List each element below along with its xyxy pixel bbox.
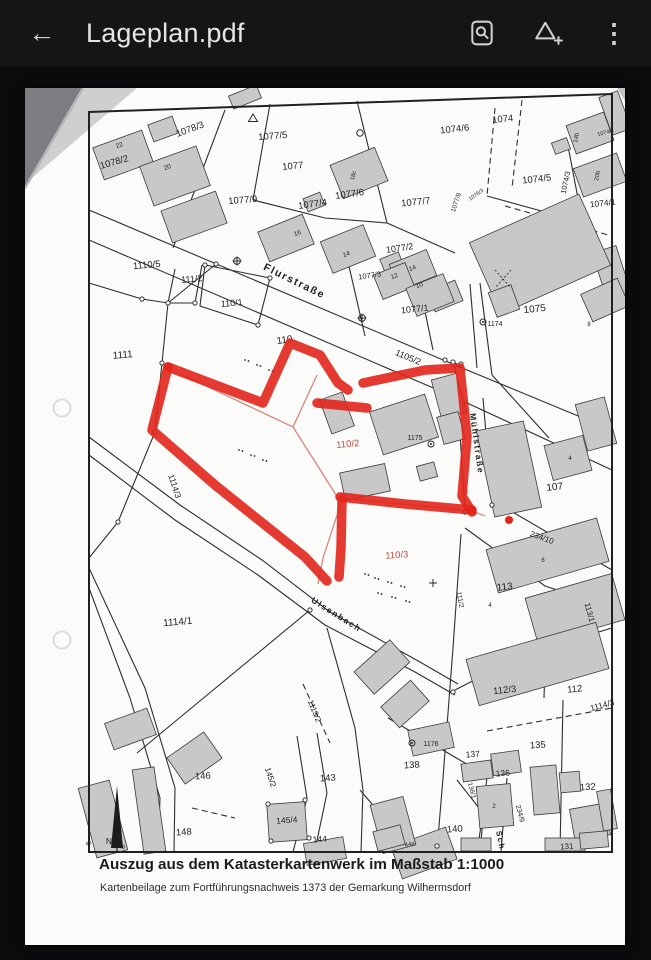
map-label: 1113/2 bbox=[306, 699, 323, 724]
survey-dots bbox=[242, 450, 244, 452]
survey-dots bbox=[238, 449, 240, 451]
map-label: 1077/7 bbox=[401, 196, 431, 210]
map-label: 4 bbox=[488, 603, 492, 609]
map-label: 138 bbox=[404, 759, 421, 771]
map-label: Flurstraße bbox=[261, 261, 327, 301]
survey-point bbox=[451, 360, 455, 364]
survey-dots bbox=[244, 359, 246, 361]
map-label: Sch bbox=[494, 830, 507, 851]
survey-dots bbox=[364, 573, 366, 575]
survey-dots bbox=[260, 365, 262, 367]
map-label: 1077/4 bbox=[297, 197, 327, 212]
buildings-layer bbox=[78, 88, 625, 879]
boundary-line bbox=[327, 628, 363, 790]
map-label: 1075 bbox=[523, 303, 547, 316]
map-label: 1074/5 bbox=[522, 173, 552, 187]
survey-point bbox=[451, 690, 455, 694]
triangle-symbol-icon bbox=[249, 114, 258, 122]
point-symbol-icon bbox=[411, 742, 413, 744]
map-label: 1077/8 bbox=[450, 192, 463, 213]
boundary-line bbox=[137, 610, 310, 753]
boundary-line bbox=[315, 733, 327, 850]
map-label: 136 bbox=[495, 768, 510, 779]
search-in-document-icon bbox=[469, 19, 495, 47]
pdf-page[interactable]: 1078/31077/51078/2222010771077/91077/410… bbox=[25, 88, 625, 945]
map-label: 1077/5 bbox=[258, 130, 288, 143]
building bbox=[354, 640, 410, 694]
survey-point bbox=[140, 297, 144, 301]
survey-dots bbox=[409, 601, 411, 603]
survey-point bbox=[214, 262, 218, 266]
building bbox=[381, 680, 429, 728]
survey-dots bbox=[254, 455, 256, 457]
survey-point bbox=[160, 361, 164, 365]
survey-point bbox=[266, 802, 270, 806]
building bbox=[530, 765, 560, 815]
survey-dots bbox=[256, 364, 258, 366]
survey-point bbox=[490, 503, 494, 507]
building bbox=[579, 831, 608, 849]
add-to-drive-button[interactable] bbox=[531, 16, 565, 50]
boundary-line-dashed bbox=[192, 808, 235, 818]
punch-hole bbox=[54, 400, 71, 417]
survey-point bbox=[308, 608, 312, 612]
map-label: 1074/6 bbox=[440, 123, 470, 137]
red-marker-annotation bbox=[152, 343, 513, 581]
map-label: 1077/6 bbox=[334, 187, 364, 202]
survey-dots bbox=[262, 459, 264, 461]
map-label: 140 bbox=[447, 823, 464, 835]
overflow-menu-button[interactable]: ⋮ bbox=[597, 16, 631, 50]
survey-point bbox=[443, 358, 447, 362]
document-title: Lageplan.pdf bbox=[86, 18, 465, 49]
map-label: 1077 bbox=[282, 160, 304, 173]
punch-hole bbox=[54, 632, 71, 649]
map-label: 146 bbox=[195, 770, 212, 782]
map-label: 110/3 bbox=[385, 549, 409, 562]
survey-point bbox=[203, 263, 207, 267]
survey-dots bbox=[381, 593, 383, 595]
survey-point bbox=[303, 798, 307, 802]
survey-point bbox=[116, 520, 120, 524]
map-label: 143 bbox=[320, 772, 337, 784]
building bbox=[416, 462, 437, 481]
map-label: 111/2 bbox=[181, 273, 203, 285]
map-label: N bbox=[106, 836, 112, 846]
search-in-document-button[interactable] bbox=[465, 16, 499, 50]
survey-dots bbox=[387, 581, 389, 583]
survey-dots bbox=[378, 578, 380, 580]
building bbox=[581, 278, 625, 322]
survey-dots bbox=[395, 597, 397, 599]
survey-dots bbox=[391, 596, 393, 598]
survey-dots bbox=[248, 360, 250, 362]
boundary-line bbox=[200, 265, 270, 325]
survey-dots bbox=[377, 592, 379, 594]
map-label: 136/1 bbox=[466, 782, 477, 800]
red-marker-stroke bbox=[168, 343, 348, 403]
survey-point bbox=[256, 323, 260, 327]
map-label: 131 bbox=[560, 842, 574, 852]
red-marker-stroke bbox=[339, 500, 342, 577]
map-label: 1111 bbox=[112, 349, 133, 362]
map-label: 112 bbox=[567, 683, 583, 696]
boundary-line-dashed bbox=[512, 100, 522, 188]
drive-add-icon bbox=[533, 20, 563, 46]
map-label: 40 bbox=[85, 840, 93, 848]
map-label: 1176 bbox=[423, 741, 438, 748]
building bbox=[461, 760, 493, 782]
red-marker-dot bbox=[505, 516, 513, 524]
map-label: 110/1 bbox=[220, 297, 243, 309]
map-label: 1110/5 bbox=[133, 259, 162, 272]
map-label: 132 bbox=[580, 781, 597, 793]
survey-dots bbox=[374, 577, 376, 579]
map-label: 1114/3 bbox=[166, 473, 183, 500]
building bbox=[132, 767, 166, 854]
survey-point bbox=[269, 839, 273, 843]
map-label: 1077/9 bbox=[228, 194, 258, 207]
red-marker-stroke bbox=[340, 497, 472, 510]
survey-dots bbox=[266, 460, 268, 462]
map-label: 1074/3 bbox=[559, 170, 573, 194]
building bbox=[408, 722, 454, 756]
survey-point bbox=[193, 301, 197, 305]
map-label: 1114/1 bbox=[163, 616, 193, 630]
survey-point bbox=[435, 844, 439, 848]
map-label: 107 bbox=[546, 481, 564, 494]
survey-dots bbox=[368, 574, 370, 576]
building bbox=[551, 138, 570, 155]
app-bar-actions: ⋮ bbox=[465, 16, 631, 50]
point-symbol-icon bbox=[430, 443, 432, 445]
map-label: 1077/2 bbox=[385, 241, 414, 255]
building bbox=[320, 392, 355, 434]
survey-dots bbox=[391, 582, 393, 584]
map-label: 1105/2 bbox=[394, 347, 423, 367]
survey-dots bbox=[404, 586, 406, 588]
map-label: 1078/3 bbox=[175, 120, 206, 140]
red-marker-stroke bbox=[317, 403, 367, 408]
map-label: 145/2 bbox=[263, 766, 278, 788]
map-label: 49 bbox=[119, 845, 125, 851]
map-label: 144 bbox=[312, 834, 327, 845]
map-label: 113 bbox=[496, 581, 513, 594]
survey-dots bbox=[268, 369, 270, 371]
ring-symbol-icon bbox=[357, 130, 363, 136]
survey-dots bbox=[400, 585, 402, 587]
building bbox=[258, 214, 314, 262]
map-label: Ulsenbach bbox=[310, 595, 364, 634]
map-caption-title: Auszug aus dem Katasterkartenwerk im Maß… bbox=[99, 856, 504, 873]
map-label: 1074 bbox=[492, 113, 514, 126]
map-label: 145/4 bbox=[276, 814, 298, 825]
building bbox=[559, 771, 581, 793]
survey-dots bbox=[405, 600, 407, 602]
boundary-line bbox=[361, 790, 363, 852]
building bbox=[320, 225, 375, 274]
map-caption-subtitle: Kartenbeilage zum Fortführungsnachweis 1… bbox=[100, 882, 471, 894]
cadastral-map: 1078/31077/51078/2222010771077/91077/410… bbox=[25, 88, 625, 945]
point-symbol-icon bbox=[482, 321, 484, 323]
map-label: 234/9 bbox=[514, 804, 525, 823]
map-label: 1174 bbox=[487, 321, 502, 328]
back-button[interactable]: ← bbox=[22, 13, 62, 53]
survey-point bbox=[166, 301, 170, 305]
map-label: 110/2 bbox=[336, 438, 360, 451]
map-label: 137 bbox=[465, 749, 480, 760]
map-label: 135 bbox=[530, 739, 547, 751]
map-label: 1175 bbox=[407, 435, 422, 442]
map-label: 148 bbox=[176, 826, 193, 838]
map-label: 1076/3 bbox=[468, 188, 485, 203]
map-label: 8 bbox=[587, 322, 591, 328]
back-arrow-icon: ← bbox=[29, 18, 56, 49]
survey-point bbox=[307, 836, 311, 840]
overflow-menu-icon: ⋮ bbox=[601, 20, 627, 46]
boundary-line bbox=[470, 284, 477, 368]
app-bar: ← Lageplan.pdf ⋮ bbox=[0, 0, 651, 66]
survey-dots bbox=[250, 454, 252, 456]
building bbox=[461, 838, 491, 851]
